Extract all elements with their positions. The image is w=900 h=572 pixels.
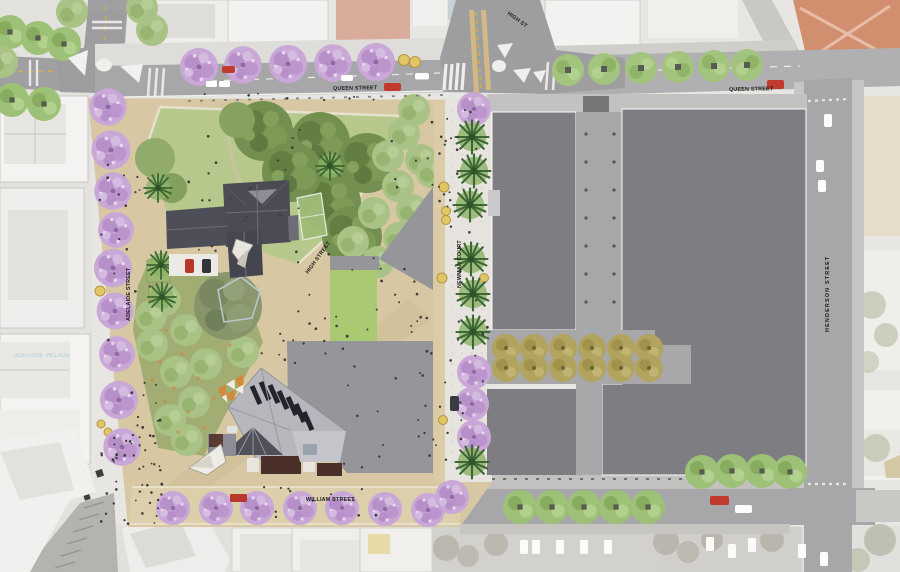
svg-text:QUEEN STREET: QUEEN STREET xyxy=(333,85,378,92)
svg-text:QUEEN STREET: QUEEN STREET xyxy=(729,86,774,93)
svg-text:ADELAIDE VILLAGE: ADELAIDE VILLAGE xyxy=(14,353,70,359)
svg-text:ADELAIDE STREET: ADELAIDE STREET xyxy=(126,267,132,321)
svg-text:WILLIAM STREET: WILLIAM STREET xyxy=(306,497,355,503)
svg-text:NEWMAN COURT: NEWMAN COURT xyxy=(457,240,463,288)
svg-text:HENDERSON STREET: HENDERSON STREET xyxy=(825,256,831,332)
